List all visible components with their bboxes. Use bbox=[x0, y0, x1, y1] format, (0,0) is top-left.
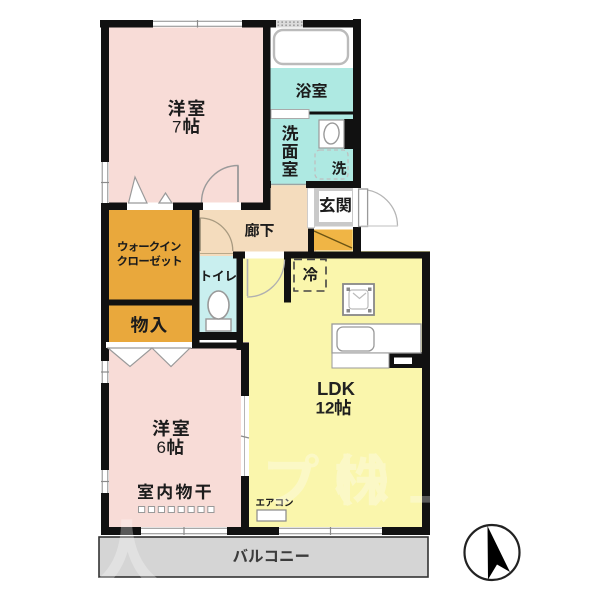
svg-text:LDK: LDK bbox=[317, 378, 356, 399]
svg-text:7: 7 bbox=[172, 118, 181, 137]
svg-text:6: 6 bbox=[157, 438, 166, 457]
svg-text:12: 12 bbox=[316, 399, 335, 418]
